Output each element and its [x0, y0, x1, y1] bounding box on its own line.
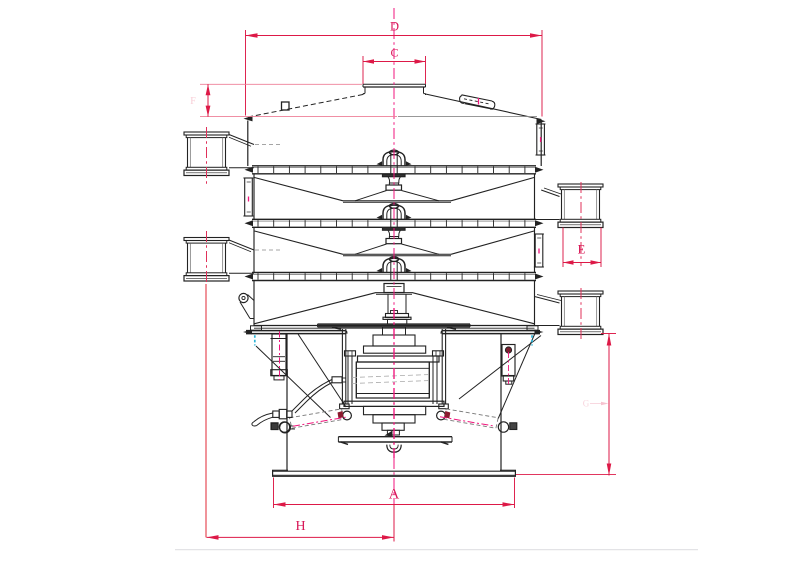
svg-text:E: E: [578, 243, 586, 257]
svg-text:D: D: [390, 19, 399, 33]
svg-text:C: C: [390, 46, 398, 60]
svg-text:A: A: [389, 487, 400, 503]
svg-text:F: F: [190, 96, 196, 107]
svg-text:H: H: [295, 519, 305, 534]
svg-text:G: G: [583, 399, 590, 409]
